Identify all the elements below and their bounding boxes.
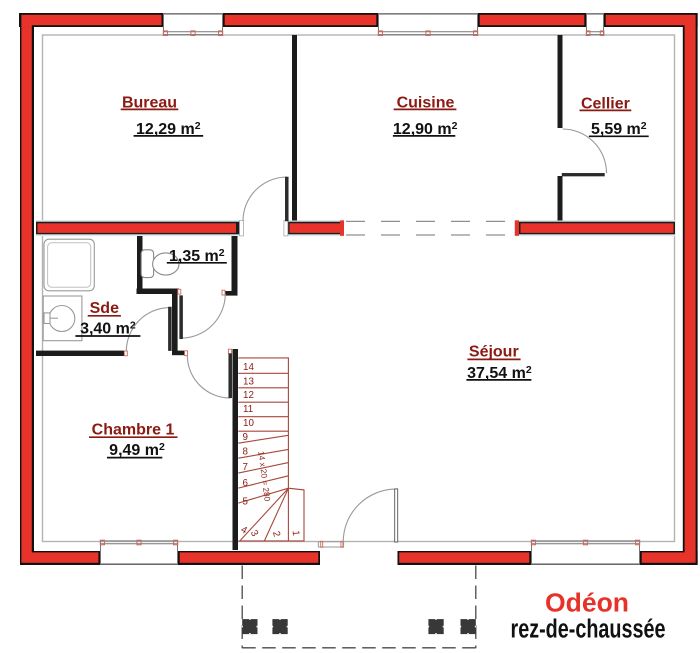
svg-text:8: 8 xyxy=(243,447,249,458)
svg-text:rez-de-chaussée: rez-de-chaussée xyxy=(511,615,666,643)
svg-text:Sde: Sde xyxy=(90,300,119,317)
svg-text:5: 5 xyxy=(243,497,249,508)
svg-text:12: 12 xyxy=(243,390,254,401)
svg-text:Séjour: Séjour xyxy=(469,343,519,360)
svg-text:7: 7 xyxy=(243,462,248,473)
svg-text:10: 10 xyxy=(243,418,254,429)
svg-text:9,49 m2: 9,49 m2 xyxy=(109,441,165,459)
svg-text:3,40 m2: 3,40 m2 xyxy=(80,319,136,337)
svg-text:13: 13 xyxy=(243,376,254,387)
svg-text:Chambre 1: Chambre 1 xyxy=(92,422,175,439)
svg-text:9: 9 xyxy=(243,432,248,443)
svg-text:6: 6 xyxy=(243,478,249,489)
svg-text:Odéon: Odéon xyxy=(545,589,629,617)
svg-text:11: 11 xyxy=(243,404,253,415)
svg-text:1: 1 xyxy=(290,530,301,536)
svg-text:14: 14 xyxy=(243,362,254,373)
